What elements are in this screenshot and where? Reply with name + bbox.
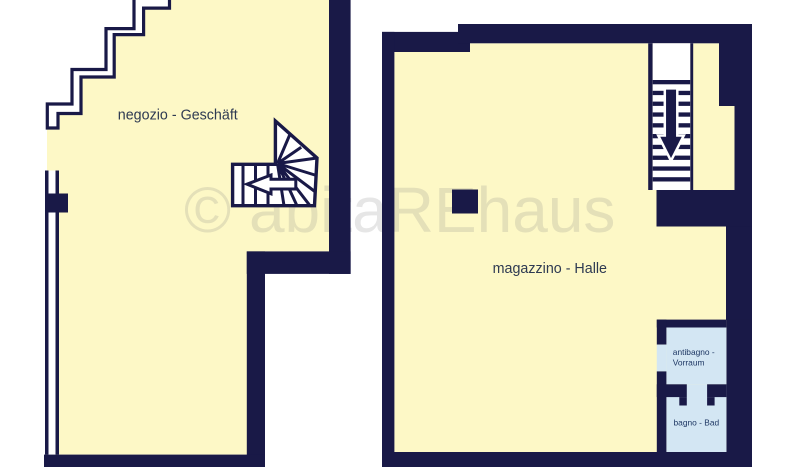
svg-text:magazzino - Halle: magazzino - Halle (493, 261, 607, 277)
svg-text:negozio - Geschäft: negozio - Geschäft (118, 108, 238, 124)
svg-text:Vorraum: Vorraum (673, 358, 705, 368)
svg-text:bagno - Bad: bagno - Bad (674, 418, 720, 428)
svg-text:antibagno -: antibagno - (673, 347, 715, 357)
